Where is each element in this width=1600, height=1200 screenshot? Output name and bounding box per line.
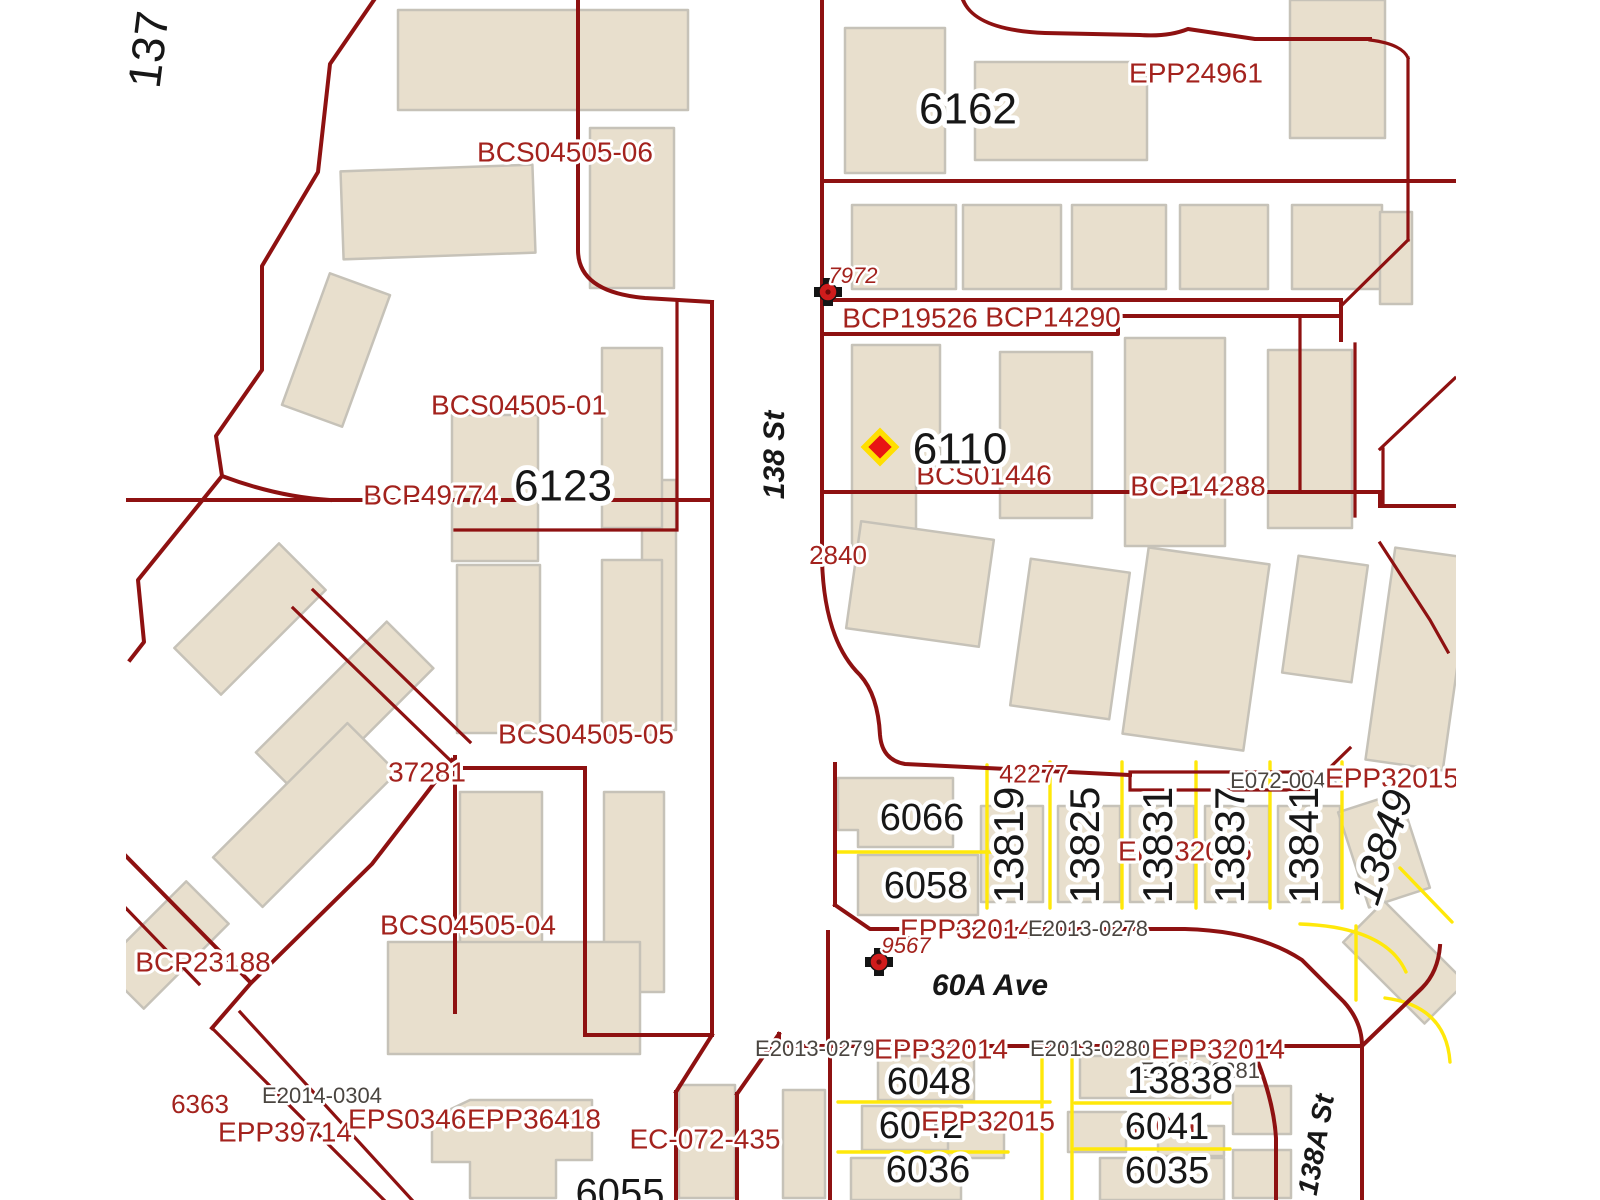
map-label: 9567 xyxy=(882,933,932,958)
map-label: 13831 xyxy=(1134,787,1181,904)
map-label: BCS04505-01 xyxy=(431,389,607,420)
map-label: 7972 xyxy=(829,263,878,288)
map-label: 6055 xyxy=(576,1172,665,1200)
map-label: E2013-0280 xyxy=(1030,1036,1150,1061)
map-label: EPP24961 xyxy=(1129,57,1263,88)
map-label: BCP14290 xyxy=(985,301,1120,332)
map-label: 13841 xyxy=(1280,787,1327,904)
map-label: 6066 xyxy=(880,797,965,839)
map-label: BCP19526 xyxy=(842,302,977,333)
map-label: 6035 xyxy=(1125,1150,1210,1192)
map-canvas[interactable]: 137BCS04505-06EPP2496161627972BCP19526BC… xyxy=(0,0,1600,1200)
cadastral-map-view[interactable]: 137BCS04505-06EPP2496161627972BCP19526BC… xyxy=(0,0,1600,1200)
map-label: 6123 xyxy=(514,462,612,511)
map-label: 137 xyxy=(118,8,179,91)
map-label: 2840 xyxy=(809,540,867,570)
map-label: E2013-0279 xyxy=(755,1036,875,1061)
map-label: 6110 xyxy=(913,425,1008,474)
map-label: BCP49774 xyxy=(363,479,498,510)
map-label: 13838 xyxy=(1127,1060,1233,1102)
map-label: BCP14288 xyxy=(1130,470,1265,501)
map-label: EPP32015 xyxy=(921,1105,1055,1136)
map-label: EPP32015 xyxy=(1325,762,1459,793)
map-label: BCS04505-06 xyxy=(477,136,653,167)
map-label: 6058 xyxy=(884,865,969,907)
map-label: 6363 xyxy=(171,1089,229,1119)
map-label: 60A Ave xyxy=(932,969,1048,1002)
map-label: 37281 xyxy=(388,756,466,787)
map-label: 13819 xyxy=(985,787,1032,904)
map-label: E2013-0278 xyxy=(1028,916,1148,941)
map-label: EPS03467 xyxy=(348,1103,482,1134)
map-label: BCS04505-05 xyxy=(498,718,674,749)
map-label: BCP23188 xyxy=(135,946,270,977)
map-label: EC-072-435 xyxy=(630,1123,781,1154)
map-label: 6162 xyxy=(919,85,1017,134)
map-label: 13837 xyxy=(1206,787,1253,904)
map-label: BCS04505-04 xyxy=(380,909,556,940)
map-label: 6041 xyxy=(1125,1106,1210,1148)
map-label: 42277 xyxy=(999,761,1069,789)
map-label: 138 St xyxy=(758,409,791,499)
map-label: 13825 xyxy=(1061,787,1108,904)
map-label: EPP36418 xyxy=(467,1103,601,1134)
map-label: 6036 xyxy=(886,1149,971,1191)
map-label: EPP32014 xyxy=(874,1033,1008,1064)
map-label: EPP39714 xyxy=(218,1116,352,1147)
map-label: 6048 xyxy=(887,1061,972,1103)
